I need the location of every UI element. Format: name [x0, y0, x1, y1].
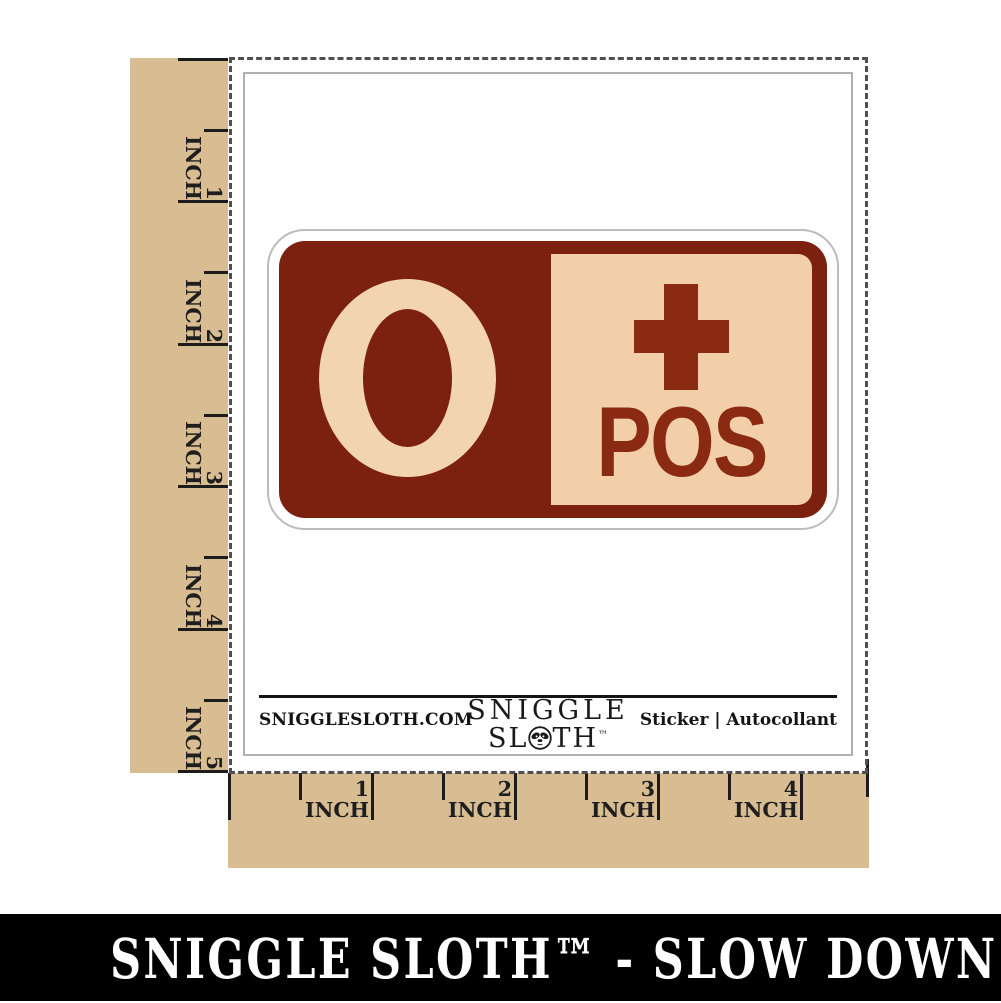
sloth-face-icon: [528, 726, 552, 750]
ruler-label-3-inch: 3INCH: [591, 779, 655, 821]
ruler-label-1-inch: 1INCH: [160, 136, 224, 200]
ruler-tick: [178, 485, 228, 488]
ruler-label-1-inch: 1INCH: [305, 779, 369, 821]
ruler-label-3-inch: 3INCH: [160, 421, 224, 485]
rh-positive-panel: POS: [551, 254, 812, 505]
ruler-tick: [178, 628, 228, 631]
ruler-tick: [585, 773, 588, 800]
ruler-tick: [514, 773, 517, 820]
ruler-tick: [657, 773, 660, 820]
blood-type-sticker[interactable]: POS: [267, 229, 839, 530]
ruler-tick: [178, 200, 228, 203]
blood-type-o-glyph: [319, 279, 496, 477]
ruler-tick: [371, 773, 374, 820]
ruler-tick: [178, 770, 228, 773]
ruler-label-5-inch: 5INCH: [160, 706, 224, 770]
ruler-tick: [299, 773, 302, 800]
vertical-ruler: 1INCH 2INCH 3INCH 4INCH 5INCH: [130, 58, 228, 773]
ruler-tick: [204, 414, 228, 417]
ruler-tick: [800, 773, 803, 820]
rh-pos-label: POS: [572, 397, 791, 487]
ruler-label-2-inch: 2INCH: [448, 779, 512, 821]
ruler-label-4-inch: 4INCH: [160, 564, 224, 628]
sticker-background: POS: [279, 241, 827, 518]
horizontal-ruler: 1INCH 2INCH 3INCH 4INCH: [228, 773, 869, 868]
ruler-tick: [228, 773, 231, 820]
ruler-tick: [442, 773, 445, 800]
trademark-symbol: ™: [598, 730, 608, 741]
ruler-tick: [178, 58, 228, 61]
sticker-sheet: POS SNIGGLESLOTH.COM SNIGGLE SLTH™ Stick…: [243, 72, 853, 756]
ruler-tick: [204, 699, 228, 702]
brand-banner: SNIGGLE SLOTH™ - SLOW DOWN & CRAFT: [0, 914, 1001, 1001]
product-type-label: Sticker | Autocollant: [640, 710, 837, 730]
ruler-tick: [204, 271, 228, 274]
ruler-tick: [728, 773, 731, 800]
ruler-label-4-inch: 4INCH: [734, 779, 798, 821]
ruler-tick: [204, 129, 228, 132]
plus-icon: [634, 320, 729, 353]
ruler-tick: [204, 556, 228, 559]
ruler-label-2-inch: 2INCH: [160, 279, 224, 343]
banner-slogan: SNIGGLE SLOTH™ - SLOW DOWN & CRAFT: [110, 914, 891, 1003]
ruler-tick: [178, 343, 228, 346]
